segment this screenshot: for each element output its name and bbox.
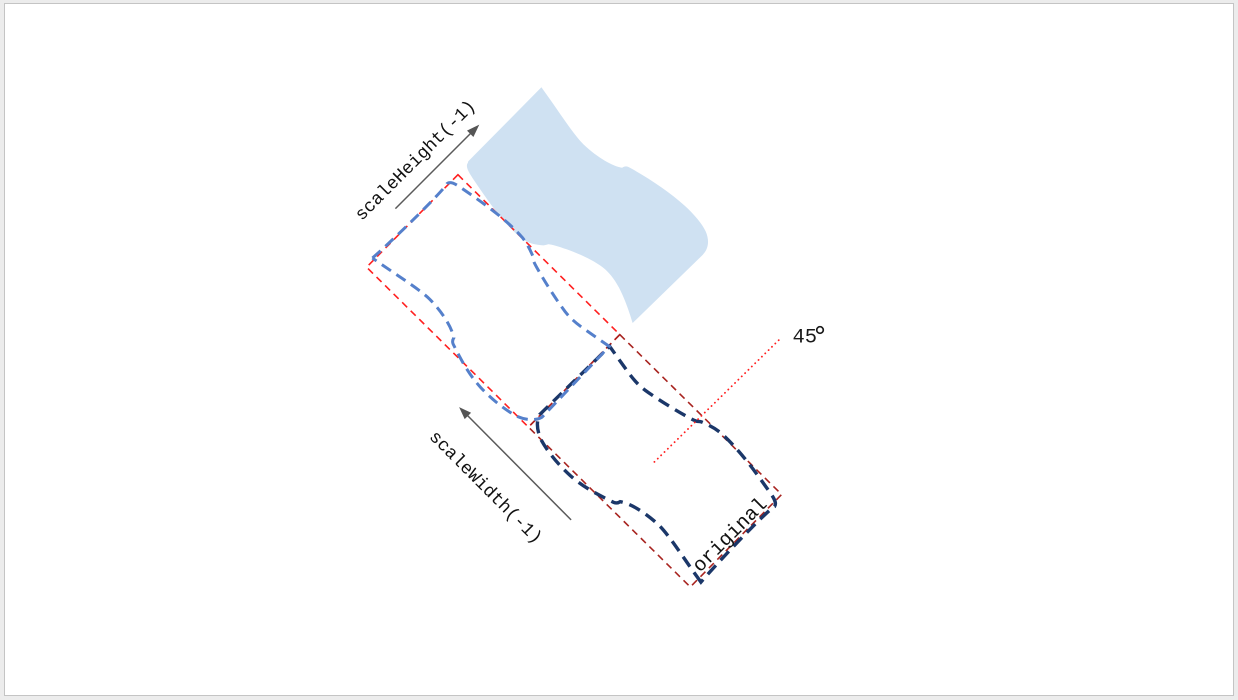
svg-text:45: 45: [793, 327, 818, 350]
svg-text:original: original: [689, 494, 773, 578]
svg-text:scaleHeight(-1): scaleHeight(-1): [352, 97, 481, 226]
svg-text:scaleWidth(-1): scaleWidth(-1): [424, 428, 545, 549]
